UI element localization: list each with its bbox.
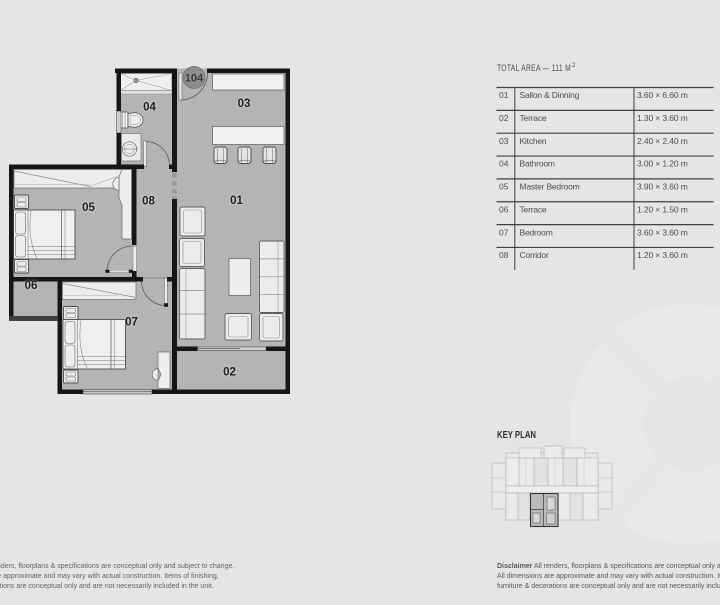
svg-text:furniture & decorations are c: furniture & decorations are conceptual o… <box>497 583 720 590</box>
svg-text:3.00 × 1.20 m: 3.00 × 1.20 m <box>637 159 688 169</box>
svg-text:TOTAL AREA — 111 M: TOTAL AREA — 111 M <box>497 63 571 74</box>
svg-text:Kitchen: Kitchen <box>520 136 547 146</box>
svg-text:Bedroom: Bedroom <box>520 227 553 237</box>
svg-text:Sallon & Dinning: Sallon & Dinning <box>520 90 580 100</box>
svg-text:All dimensions are approximat: All dimensions are approximate and may v… <box>497 573 720 580</box>
svg-text:03: 03 <box>238 98 251 110</box>
svg-text:Corridor: Corridor <box>520 250 549 260</box>
svg-text:Bathroom: Bathroom <box>520 159 555 169</box>
svg-text:03: 03 <box>499 136 509 146</box>
svg-text:07: 07 <box>125 317 138 329</box>
svg-text:2.40 × 2.40 m: 2.40 × 2.40 m <box>637 136 688 146</box>
svg-text:1.30 × 3.60 m: 1.30 × 3.60 m <box>637 113 688 123</box>
svg-text:06: 06 <box>499 204 509 214</box>
svg-text:07: 07 <box>499 227 509 237</box>
svg-text:01: 01 <box>499 90 509 100</box>
svg-text:05: 05 <box>82 202 95 214</box>
svg-text:Disclaimer All renders, floorp: Disclaimer All renders, floorplans & spe… <box>0 563 234 570</box>
svg-text:04: 04 <box>143 102 156 114</box>
svg-text:1.20 × 1.50 m: 1.20 × 1.50 m <box>637 204 688 214</box>
svg-text:1.20 × 3.60 m: 1.20 × 3.60 m <box>637 250 688 260</box>
svg-text:Terrace: Terrace <box>520 204 547 214</box>
svg-text:08: 08 <box>142 196 155 208</box>
svg-text:Disclaimer All renders, floorp: Disclaimer All renders, floorplans & spe… <box>497 563 720 570</box>
svg-text:04: 04 <box>499 159 509 169</box>
svg-text:02: 02 <box>223 367 236 379</box>
svg-text:KEY PLAN: KEY PLAN <box>497 429 536 441</box>
svg-text:06: 06 <box>25 280 38 292</box>
svg-text:08: 08 <box>499 250 509 260</box>
svg-text:furniture & decorations are c: furniture & decorations are conceptual o… <box>0 583 214 590</box>
svg-text:3.60 × 6.60 m: 3.60 × 6.60 m <box>637 90 688 100</box>
svg-text:3.60 × 3.60 m: 3.60 × 3.60 m <box>637 227 688 237</box>
svg-text:104: 104 <box>185 73 204 85</box>
svg-text:01: 01 <box>230 195 243 207</box>
svg-text:All dimensions are approximat: All dimensions are approximate and may v… <box>0 573 219 580</box>
svg-text:Master Bedroom: Master Bedroom <box>520 182 580 192</box>
svg-text:05: 05 <box>499 182 509 192</box>
svg-text:3.90 × 3.60 m: 3.90 × 3.60 m <box>637 182 688 192</box>
svg-text:02: 02 <box>499 113 509 123</box>
svg-text:Terrace: Terrace <box>520 113 547 123</box>
